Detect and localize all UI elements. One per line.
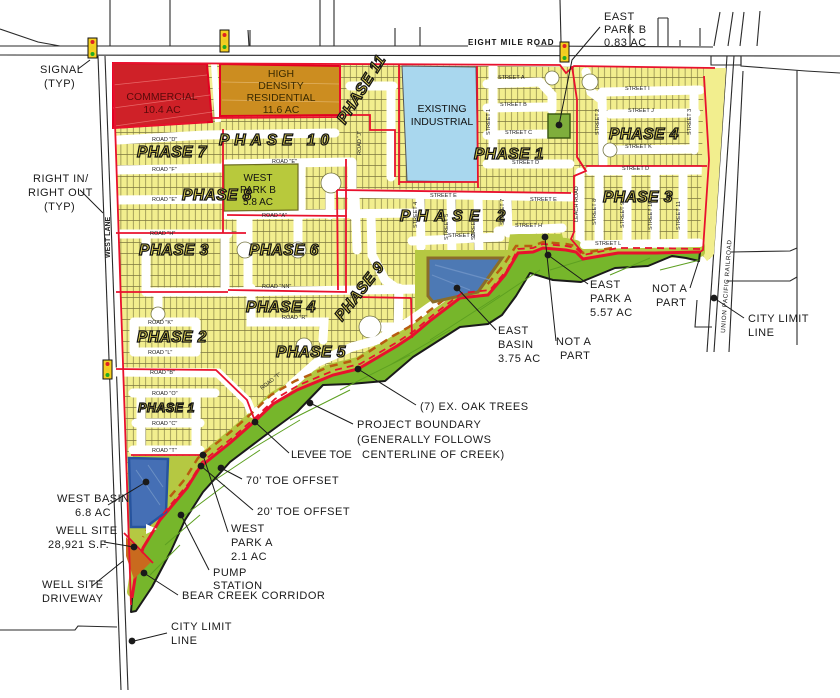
svg-text:STREET B: STREET B: [500, 102, 527, 108]
svg-text:20' TOE OFFSET: 20' TOE OFFSET: [257, 506, 350, 518]
svg-text:BASIN: BASIN: [498, 339, 534, 351]
svg-text:6.8 AC: 6.8 AC: [75, 507, 111, 519]
svg-text:HIGH: HIGH: [268, 68, 294, 80]
svg-text:PHASE 2: PHASE 2: [137, 329, 207, 346]
svg-text:STREET D: STREET D: [512, 160, 539, 166]
svg-text:ROAD "L": ROAD "L": [148, 350, 172, 356]
svg-text:PARK A: PARK A: [231, 537, 273, 549]
svg-text:PHASE 3: PHASE 3: [139, 242, 209, 259]
svg-text:STREET 5: STREET 5: [444, 214, 450, 240]
svg-text:(TYP): (TYP): [44, 78, 75, 90]
svg-text:(7) EX. OAK TREES: (7) EX. OAK TREES: [420, 401, 529, 413]
svg-text:STREET 1: STREET 1: [486, 109, 492, 135]
svg-text:ROAD "D": ROAD "D": [152, 137, 177, 143]
svg-text:ROAD "B": ROAD "B": [150, 370, 175, 376]
svg-text:EXISTING: EXISTING: [417, 103, 466, 115]
svg-text:STREET 10: STREET 10: [648, 201, 654, 230]
svg-text:11.6 AC: 11.6 AC: [263, 104, 300, 116]
svg-text:5.8 AC: 5.8 AC: [243, 197, 273, 208]
svg-text:EAST: EAST: [590, 279, 621, 291]
svg-text:STREET H: STREET H: [515, 223, 542, 229]
svg-text:STREET C: STREET C: [505, 130, 532, 136]
svg-text:ROAD "NN": ROAD "NN": [262, 284, 291, 290]
svg-text:PARK B: PARK B: [240, 185, 276, 196]
svg-text:WEST LANE: WEST LANE: [105, 216, 112, 258]
svg-text:ROAD "E": ROAD "E": [152, 197, 177, 203]
svg-text:DRIVEWAY: DRIVEWAY: [42, 593, 104, 605]
svg-text:STREET D: STREET D: [622, 166, 649, 172]
svg-text:PART: PART: [560, 350, 590, 362]
svg-text:STREET 4: STREET 4: [413, 202, 419, 228]
svg-text:EAST: EAST: [604, 11, 635, 23]
svg-text:3.75 AC: 3.75 AC: [498, 353, 541, 365]
svg-text:PHASE 7: PHASE 7: [137, 144, 208, 161]
svg-text:PART: PART: [656, 297, 686, 309]
svg-text:ROAD "K": ROAD "K": [148, 320, 173, 326]
svg-text:NOT A: NOT A: [652, 283, 687, 295]
svg-text:ROAD "H": ROAD "H": [150, 231, 175, 237]
svg-text:ROAD "E": ROAD "E": [272, 159, 297, 165]
svg-text:STREET 6: STREET 6: [471, 214, 477, 240]
svg-text:STREET K: STREET K: [625, 144, 652, 150]
svg-text:SIGNAL: SIGNAL: [40, 64, 83, 76]
svg-text:RESIDENTIAL: RESIDENTIAL: [247, 92, 316, 104]
svg-text:ROAD "R": ROAD "R": [282, 315, 307, 321]
svg-text:CENTERLINE OF CREEK): CENTERLINE OF CREEK): [362, 449, 505, 461]
svg-text:ROAD "J": ROAD "J": [357, 131, 363, 155]
svg-text:NOT A: NOT A: [556, 336, 591, 348]
svg-text:70' TOE OFFSET: 70' TOE OFFSET: [246, 475, 339, 487]
svg-text:28,921 S.F.: 28,921 S.F.: [48, 539, 109, 551]
svg-text:PHASE 10: PHASE 10: [219, 132, 334, 149]
svg-text:(TYP): (TYP): [44, 201, 75, 213]
svg-text:STREET A: STREET A: [498, 75, 525, 81]
svg-text:10.4 AC: 10.4 AC: [143, 104, 181, 116]
svg-text:CITY LIMIT: CITY LIMIT: [171, 621, 232, 633]
svg-text:RIGHT IN/: RIGHT IN/: [33, 173, 89, 185]
svg-text:STREET 2: STREET 2: [595, 109, 601, 135]
svg-text:WEST: WEST: [244, 173, 273, 184]
svg-text:PARK A: PARK A: [590, 293, 632, 305]
svg-text:STREET 9: STREET 9: [620, 202, 626, 228]
svg-text:STREET I: STREET I: [625, 86, 650, 92]
svg-text:PUMP: PUMP: [213, 567, 247, 579]
svg-text:ROAD "T": ROAD "T": [152, 448, 177, 454]
svg-text:ROAD "O": ROAD "O": [152, 391, 178, 397]
svg-text:STREET 11: STREET 11: [676, 201, 682, 230]
svg-text:EIGHT MILE ROAD: EIGHT MILE ROAD: [468, 38, 555, 47]
svg-text:STREET E: STREET E: [530, 197, 557, 203]
svg-text:DENSITY: DENSITY: [258, 80, 304, 92]
svg-text:INDUSTRIAL: INDUSTRIAL: [411, 116, 474, 128]
svg-text:PARK B: PARK B: [604, 24, 647, 36]
svg-text:LEACH ROAD: LEACH ROAD: [574, 186, 580, 222]
svg-text:LINE: LINE: [748, 327, 774, 339]
svg-text:EAST: EAST: [498, 325, 529, 337]
svg-text:PHASE 4: PHASE 4: [609, 126, 679, 143]
svg-text:STREET E: STREET E: [430, 193, 457, 199]
svg-text:ROAD "C": ROAD "C": [152, 421, 177, 427]
svg-text:ROAD "A": ROAD "A": [262, 213, 287, 219]
svg-text:PROJECT BOUNDARY: PROJECT BOUNDARY: [357, 419, 482, 431]
svg-text:PHASE 1: PHASE 1: [138, 401, 195, 415]
svg-text:CITY LIMIT: CITY LIMIT: [748, 313, 809, 325]
svg-text:WELL SITE: WELL SITE: [56, 525, 118, 537]
svg-text:STREET J: STREET J: [628, 108, 654, 114]
svg-text:LEVEE TOE: LEVEE TOE: [291, 449, 352, 461]
svg-text:STREET 3: STREET 3: [687, 109, 693, 135]
svg-text:PHASE 4: PHASE 4: [246, 299, 316, 316]
svg-text:BEAR CREEK CORRIDOR: BEAR CREEK CORRIDOR: [182, 590, 325, 602]
svg-text:WELL SITE: WELL SITE: [42, 579, 104, 591]
svg-text:2.1 AC: 2.1 AC: [231, 551, 267, 563]
svg-text:PHASE 3: PHASE 3: [603, 189, 673, 206]
svg-text:PHASE 6: PHASE 6: [249, 242, 319, 259]
svg-text:PHASE 5: PHASE 5: [276, 344, 346, 361]
svg-text:LINE: LINE: [171, 635, 197, 647]
svg-text:COMMERCIAL: COMMERCIAL: [126, 91, 197, 103]
svg-text:STREET 8: STREET 8: [592, 199, 598, 225]
svg-text:(GENERALLY FOLLOWS: (GENERALLY FOLLOWS: [357, 434, 492, 446]
svg-text:WEST: WEST: [231, 523, 265, 535]
svg-text:STREET L: STREET L: [595, 241, 621, 247]
svg-text:STREET 7: STREET 7: [500, 199, 506, 225]
svg-text:0.83 AC: 0.83 AC: [604, 37, 647, 49]
svg-text:5.57 AC: 5.57 AC: [590, 307, 633, 319]
svg-text:ROAD "F": ROAD "F": [152, 167, 177, 173]
